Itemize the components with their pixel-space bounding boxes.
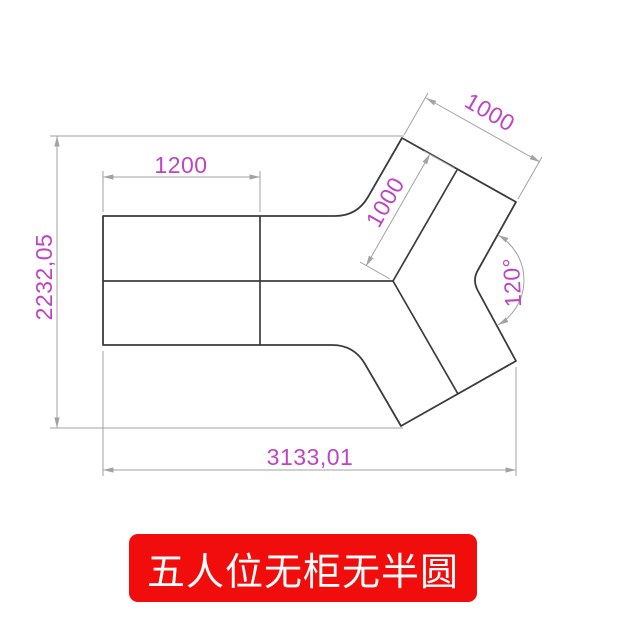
cad-drawing: 1200 2232,05 3133,01 1000 1000 120° (0, 0, 620, 620)
extension-lines (50, 93, 542, 476)
desk-lower-arm-divider (393, 281, 458, 394)
dim-label-left-desk-width: 1200 (154, 152, 207, 178)
dimension-lines (57, 98, 540, 470)
dim-label-overall-height: 2232,05 (31, 234, 57, 321)
product-dimension-image: 1200 2232,05 3133,01 1000 1000 120° 五人位无… (0, 0, 620, 620)
dim-label-arm-angle: 120° (498, 257, 527, 308)
product-variant-banner: 五人位无柜无半圆 (129, 534, 477, 602)
dim-label-arm-end-width: 1000 (460, 88, 519, 137)
dim-label-overall-width: 3133,01 (267, 444, 354, 470)
desk-outline (103, 138, 516, 426)
